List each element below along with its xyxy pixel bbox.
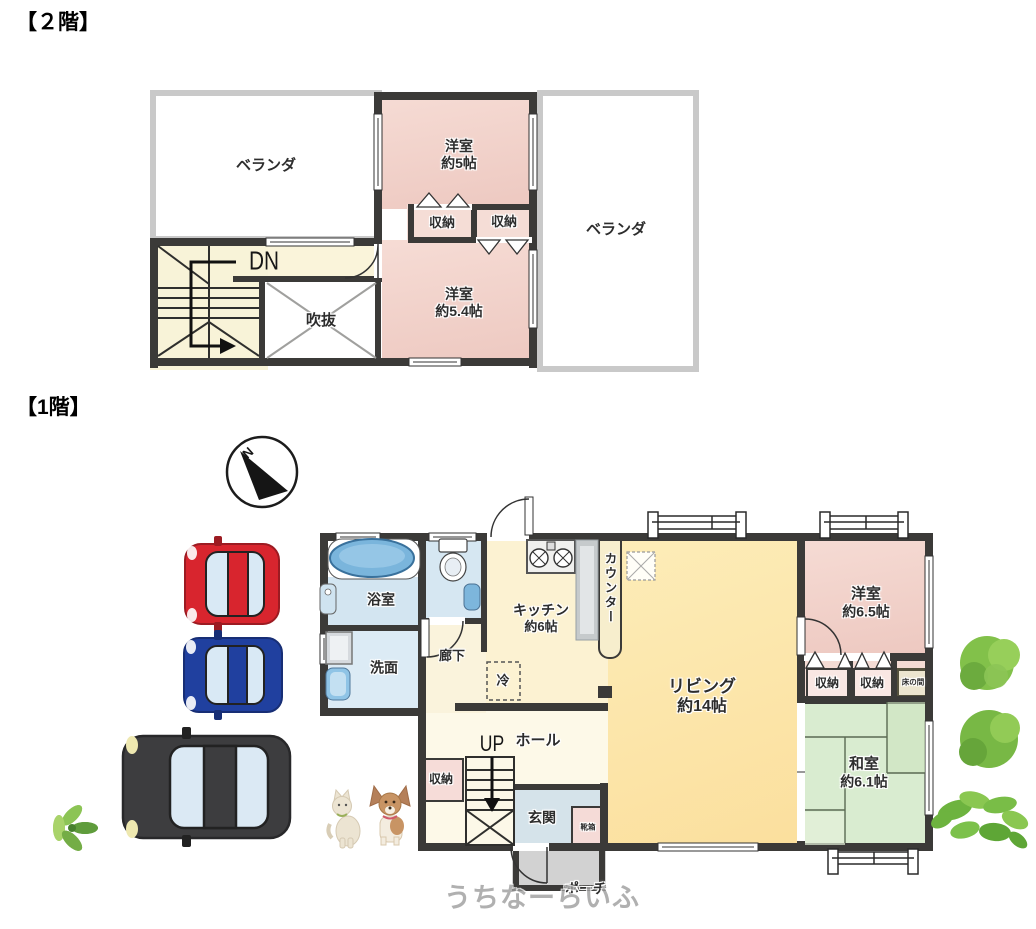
- closet-right-2f-label: 収納: [491, 214, 517, 230]
- red-car-illustration: [185, 536, 279, 632]
- corridor-1f: [424, 621, 486, 713]
- western-room-65-label: 洋室 約6.5帖: [842, 586, 889, 621]
- site-watermark: うちなーらいふ: [444, 876, 640, 915]
- dog-illustration: [370, 786, 410, 845]
- corridor-label: 廊下: [439, 648, 465, 664]
- refrigerator-label: 冷: [496, 673, 509, 689]
- shoe-box-label: 靴箱: [581, 823, 596, 832]
- blue-car-illustration: [184, 630, 282, 720]
- floor2-title: 【２階】: [16, 6, 100, 36]
- compass-icon: [227, 437, 297, 507]
- floor-plan-canvas: 【２階】 【1階】: [0, 0, 1036, 929]
- bathroom-label: 浴室: [367, 592, 395, 609]
- veranda-left-label: ベランダ: [236, 157, 296, 175]
- cat-illustration: [328, 790, 360, 848]
- tree-icon-top: [960, 636, 1020, 690]
- stairs-up-label: UP: [480, 731, 504, 757]
- washroom-label: 洗面: [370, 660, 398, 677]
- hall-closet-label: 収納: [429, 772, 453, 786]
- counter-label: カウンター: [602, 552, 617, 625]
- plant-icon-bottom-left: [53, 802, 98, 854]
- compass-north-label: N: [239, 444, 256, 462]
- closet-row-2f: [407, 204, 537, 242]
- closet-a-label: 収納: [815, 676, 839, 690]
- living-label: リビング 約14帖: [668, 677, 736, 717]
- veranda-right-label: ベランダ: [586, 221, 646, 239]
- closet-left-2f-label: 収納: [429, 215, 455, 231]
- hall-label: ホール: [515, 732, 560, 750]
- tree-icon-middle: [959, 710, 1020, 768]
- stairs-down-label: DN: [249, 245, 279, 276]
- shrub-icon-bottom: [928, 788, 1031, 852]
- void-label: 吹抜: [306, 312, 336, 330]
- bath-tub-area-1f: [324, 533, 424, 583]
- closet-b-label: 収納: [860, 676, 884, 690]
- tokonoma-label: 床の間: [902, 678, 925, 687]
- kitchen-label: キッチン 約6帖: [513, 602, 569, 634]
- toilet-room-1f: [424, 533, 486, 623]
- black-car-illustration: [123, 727, 290, 847]
- western-room-5-label: 洋室 約5帖: [441, 138, 477, 172]
- entrance-label: 玄関: [528, 810, 556, 827]
- western-room-54-label: 洋室 約5.4帖: [435, 286, 482, 320]
- floor1-title: 【1階】: [16, 391, 91, 421]
- japanese-room-label: 和室 約6.1帖: [840, 756, 887, 791]
